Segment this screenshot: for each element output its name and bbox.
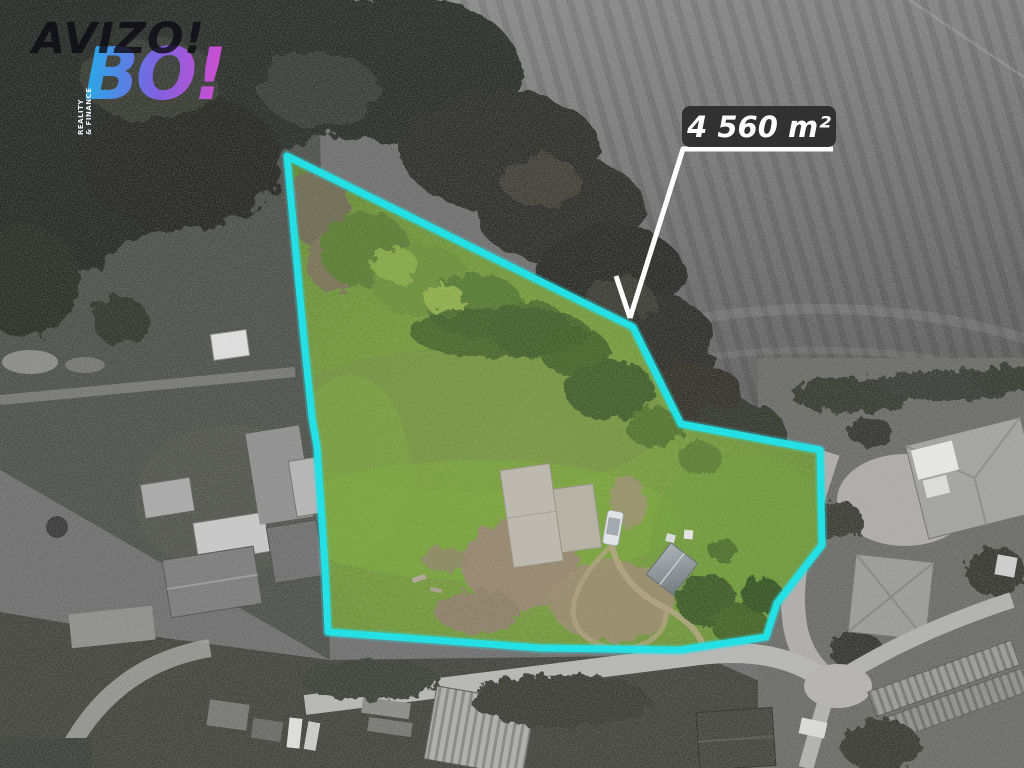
brand-logo: AVIZO! BO! REALITY & FINANCE — [30, 14, 240, 139]
brand-subtitle: REALITY & FINANCE — [77, 88, 93, 135]
area-label-text: 4 560 m² — [686, 110, 831, 144]
brand-subtitle-line2: & FINANCE — [85, 88, 93, 135]
brand-avizo-text: AVIZO! — [32, 14, 205, 64]
brand-subtitle-line1: REALITY — [77, 88, 85, 135]
aerial-photo: 4 560 m² AVIZO! BO! REALITY & FINANCE — [0, 0, 1024, 768]
